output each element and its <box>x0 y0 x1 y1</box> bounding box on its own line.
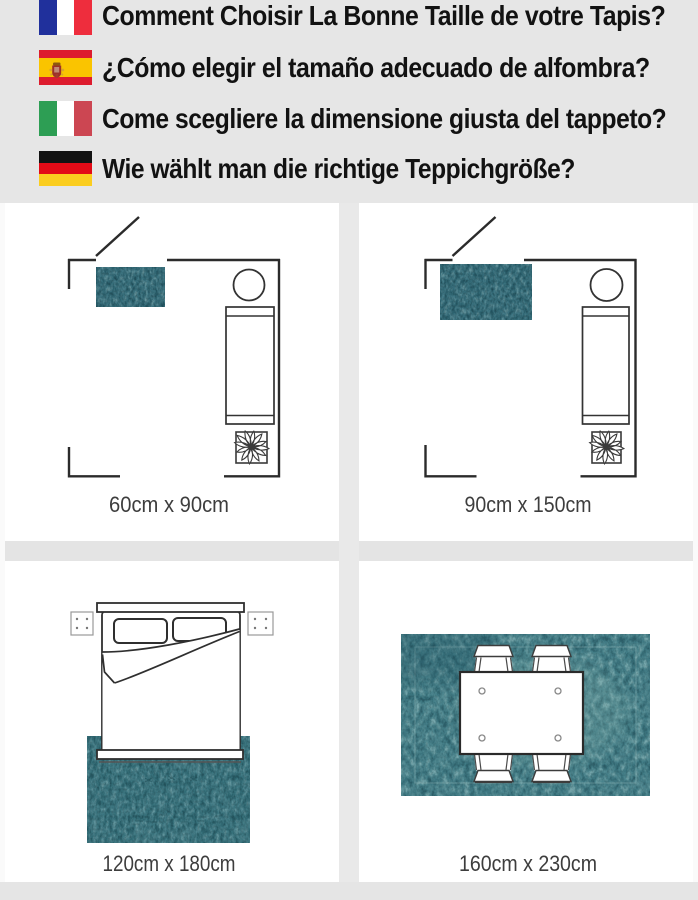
svg-text:90cm x 150cm: 90cm x 150cm <box>465 492 592 517</box>
svg-text:160cm x 230cm: 160cm x 230cm <box>459 851 597 876</box>
svg-text:60cm x 90cm: 60cm x 90cm <box>109 492 229 517</box>
svg-text:120cm x 180cm: 120cm x 180cm <box>103 851 236 876</box>
